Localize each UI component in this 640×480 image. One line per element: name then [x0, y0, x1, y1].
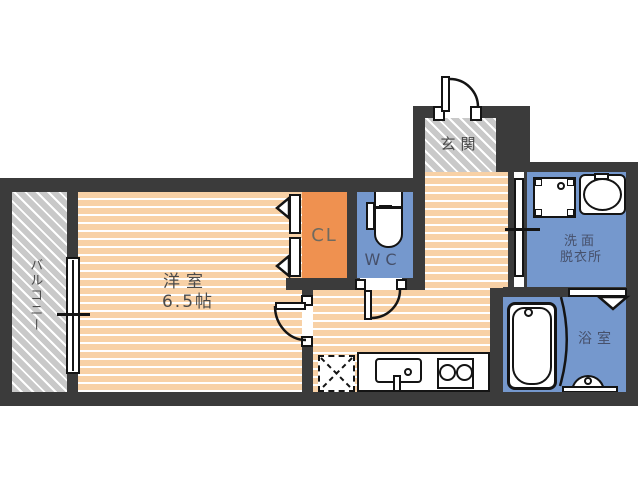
closet-label: CL	[302, 226, 347, 246]
wall-bedroom-divider-bottom	[302, 346, 313, 392]
wc-door-post	[355, 279, 366, 290]
bathroom-label: 浴室	[563, 332, 631, 347]
toilet-paper-holder-icon	[366, 202, 375, 230]
folding-door-icon	[289, 194, 301, 234]
washer-pan-corner-icon	[567, 209, 574, 216]
entrance-door-arc	[450, 79, 478, 107]
wall-balcony-divider-bottom	[67, 374, 78, 392]
sliding-door-tick	[505, 228, 540, 231]
wall-kitchen-bath-divider	[490, 288, 503, 392]
washer-pan-corner-icon	[567, 179, 574, 186]
entrance-label: 玄関	[425, 136, 496, 153]
kitchen-faucet-icon	[393, 375, 401, 392]
wall-entrance-left	[413, 106, 425, 192]
bedroom-label: 洋室	[126, 273, 246, 292]
window-tick	[57, 313, 90, 316]
wall-clwc-bottom-left	[286, 278, 360, 290]
wall-top-main	[0, 178, 425, 192]
washer-faucet-icon	[557, 182, 565, 190]
wall-entrance-right	[496, 106, 530, 172]
sink-faucet-icon	[594, 173, 609, 180]
folding-door-icon	[289, 237, 301, 277]
washer-pan-corner-icon	[535, 209, 542, 216]
washroom-label-line1: 洗面	[540, 235, 622, 249]
wc-door-post	[396, 279, 407, 290]
wc-label: WC	[355, 251, 411, 269]
sink-bowl-icon	[583, 178, 622, 211]
washer-pan-corner-icon	[535, 179, 542, 186]
stove-burner-icon	[439, 364, 456, 381]
wall-washroom-slide-right	[524, 172, 527, 297]
floor-plan: バルコニー 洋室 6.5帖 CL WC 玄関 洗面 脱衣所 浴室	[0, 0, 640, 480]
wall-left	[0, 178, 12, 406]
bathroom-door-bar	[568, 288, 627, 297]
balcony-label: バルコニー	[27, 248, 41, 343]
toilet-bowl-icon	[374, 207, 403, 248]
stove-burner-icon	[456, 364, 473, 381]
bedroom-size-label: 6.5帖	[126, 293, 250, 312]
washroom-label-line2: 脱衣所	[540, 251, 622, 265]
bedroom-door-leaf	[275, 302, 306, 310]
wall-balcony-divider-top	[67, 192, 78, 257]
bathtub-inner-icon	[512, 307, 552, 385]
bath-counter-knob-icon	[584, 377, 592, 385]
wall-bottom	[0, 392, 638, 406]
entrance-door-leaf	[441, 76, 450, 112]
wall-washroom-top	[527, 162, 638, 172]
bedroom-door-post	[301, 336, 313, 347]
fridge-space-icon	[318, 355, 355, 392]
bathtub-drain-icon	[524, 308, 533, 317]
kitchen-sink-knob-icon	[404, 368, 412, 376]
entrance-door-post	[470, 106, 482, 121]
wc-door-leaf	[364, 290, 372, 320]
wall-right	[626, 162, 638, 406]
wall-wc-hall-divider	[413, 192, 425, 278]
